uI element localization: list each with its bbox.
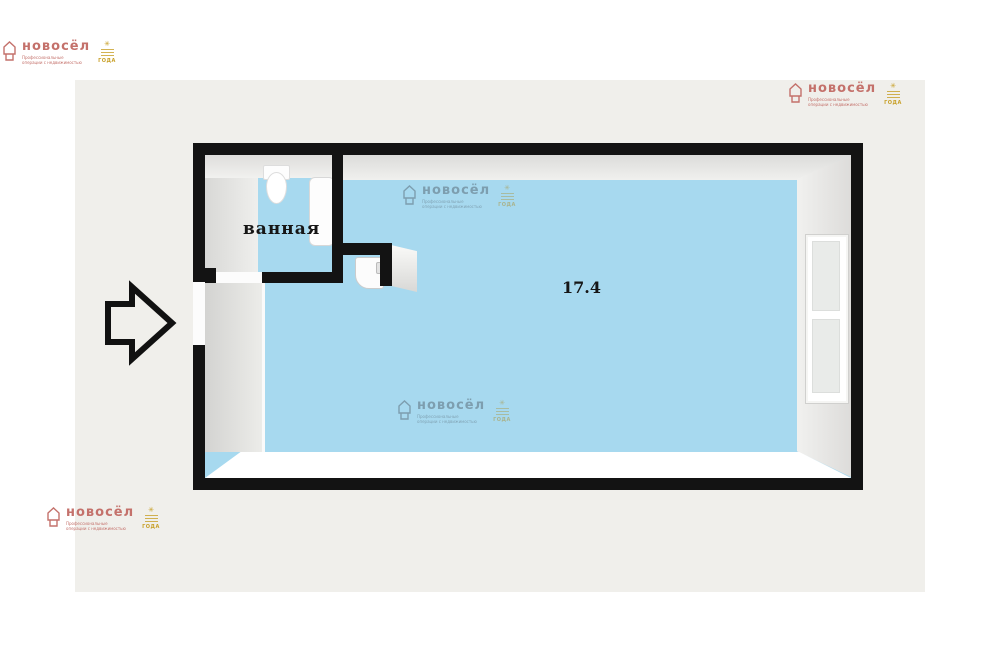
hallway-wall-3d (205, 283, 265, 452)
brand-name: новосёл (422, 184, 490, 197)
house-icon (402, 184, 417, 206)
window-pane-top (812, 241, 840, 311)
main-room-bottom-wall-3d (205, 452, 851, 478)
window-pane-bottom (812, 319, 840, 393)
niche-wall-right (380, 243, 392, 286)
outer-wall-left-lower (193, 345, 205, 490)
floor-plan-image: ванная 17.4 новосёл Профессиональные опе… (0, 0, 1000, 667)
brand-name: новосёл (417, 399, 485, 412)
house-icon (788, 82, 803, 104)
award-badge-icon: ✳ ГОДА (884, 83, 902, 106)
brand-watermark-top-right: новосёл Профессиональные операции с недв… (788, 82, 902, 107)
brand-tagline: Профессиональные операции с недвижимость… (417, 414, 479, 424)
room-area-label: 17.4 (562, 278, 601, 297)
brand-watermark-top-left: новосёл Профессиональные операции с недв… (2, 40, 116, 65)
award-badge-icon: ✳ ГОДА (142, 507, 160, 530)
bathroom-wall-right (332, 143, 343, 283)
brand-name: новосёл (66, 506, 134, 519)
outer-wall-bottom (193, 478, 863, 490)
brand-tagline: Профессиональные операции с недвижимость… (66, 521, 128, 531)
brand-name: новосёл (808, 82, 876, 95)
award-badge-icon: ✳ ГОДА (493, 400, 511, 423)
award-badge-icon: ✳ ГОДА (498, 185, 516, 208)
brand-watermark-floor-top: новосёл Профессиональные операции с недв… (402, 184, 516, 209)
brand-watermark-bottom-left: новосёл Профессиональные операции с недв… (46, 506, 160, 531)
brand-watermark-floor-bottom: новосёл Профессиональные операции с недв… (397, 399, 511, 424)
outer-wall-top (193, 143, 863, 155)
brand-tagline: Профессиональные операции с недвижимость… (22, 55, 84, 65)
bathroom-wall-bottom (262, 272, 343, 283)
entrance-arrow-icon (102, 278, 180, 370)
wall-stub-entrance (193, 268, 216, 283)
bathroom-label: ванная (243, 219, 320, 239)
brand-name: новосёл (22, 40, 90, 53)
house-icon (397, 399, 412, 421)
brand-tagline: Профессиональные операции с недвижимость… (808, 97, 870, 107)
award-badge-icon: ✳ ГОДА (98, 41, 116, 64)
open-door-panel (391, 245, 417, 292)
outer-wall-left-upper (193, 143, 205, 283)
entrance-doorway (193, 282, 205, 345)
house-icon (46, 506, 61, 528)
outer-wall-right (851, 143, 863, 490)
brand-tagline: Профессиональные операции с недвижимость… (422, 199, 484, 209)
window (806, 235, 848, 403)
house-icon (2, 40, 17, 62)
